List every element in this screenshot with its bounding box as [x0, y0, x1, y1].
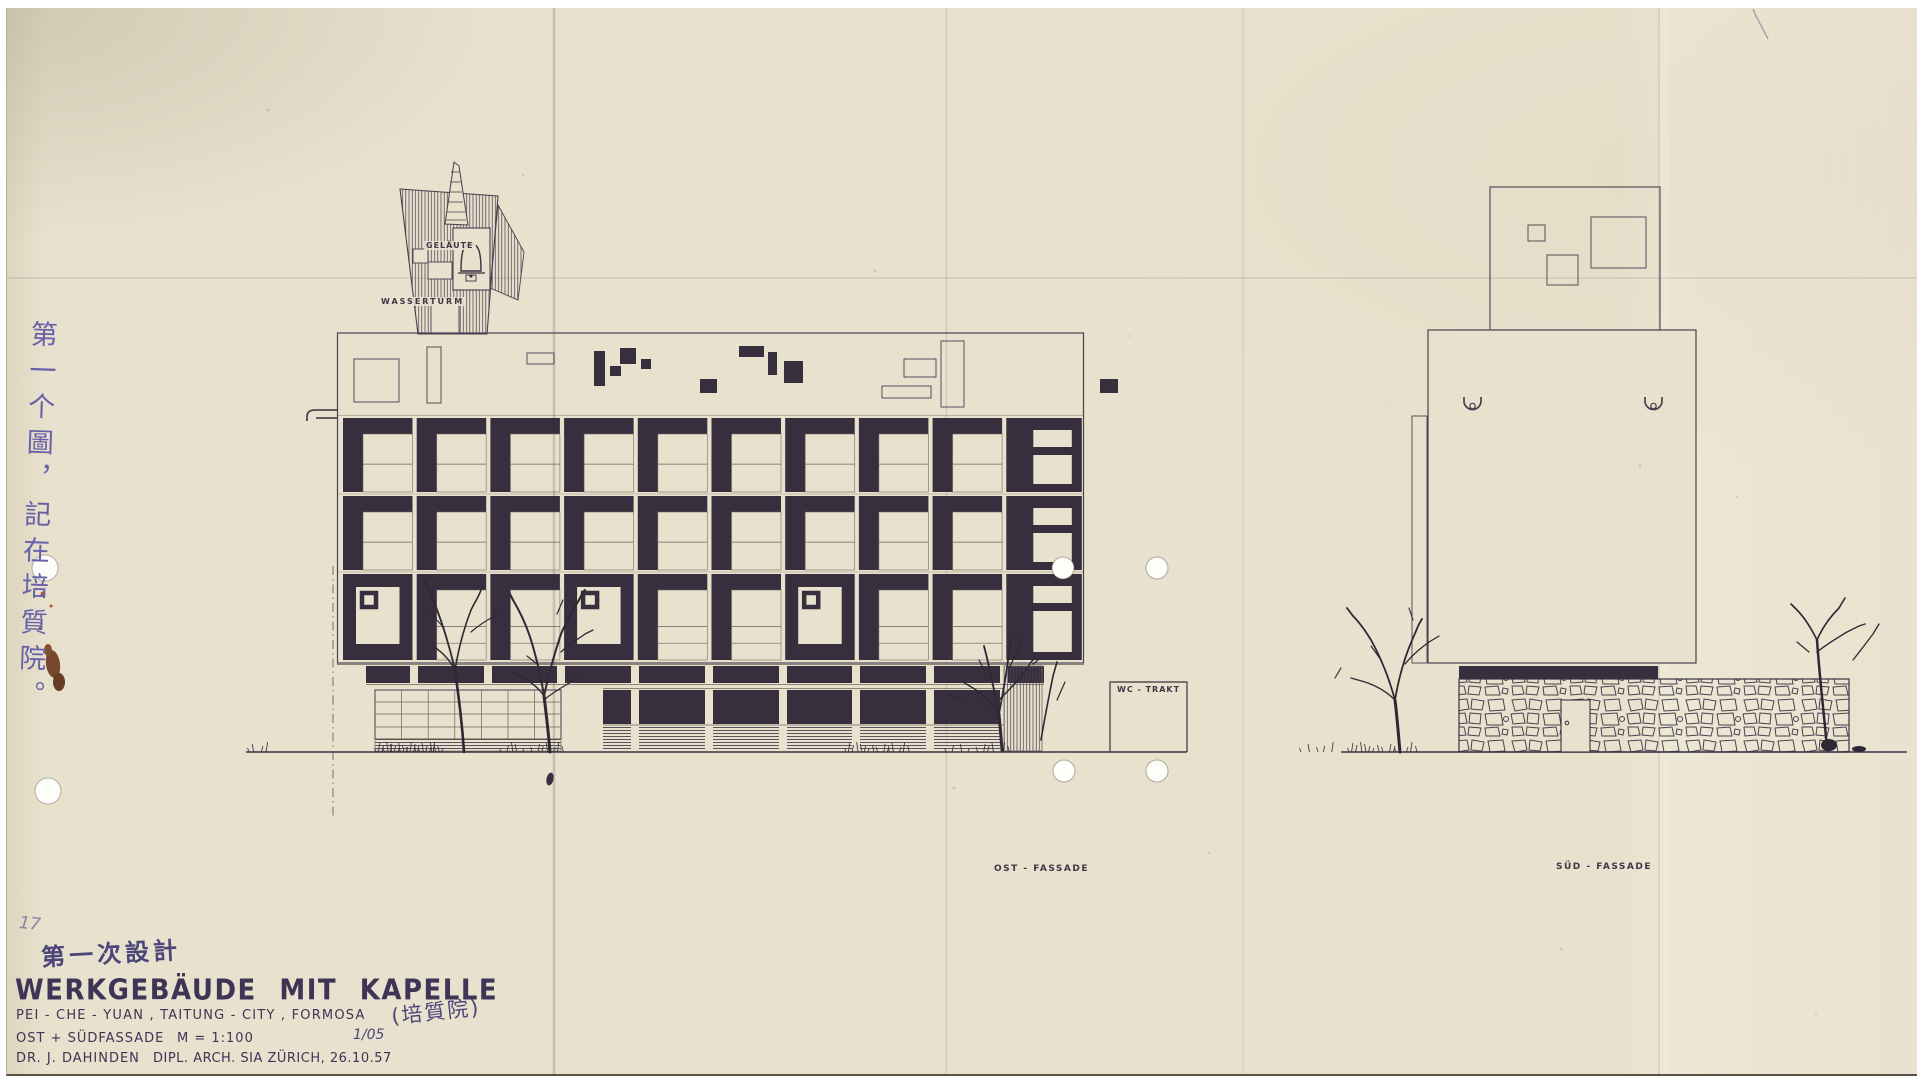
sheet-number: 1/05 — [353, 1027, 384, 1043]
south-facade-elevation — [1412, 187, 1849, 752]
south-facade-label: SÜD - FASSADE — [1556, 862, 1652, 872]
wc-trakt-label: WC - TRAKT — [1117, 685, 1180, 694]
stone-wall — [1459, 679, 1849, 752]
water-tower-label: WASSERTURM — [379, 297, 466, 306]
spout-icon — [307, 410, 337, 421]
location-line: PEI - CHE - YUAN , TAITUNG - CITY , FORM… — [16, 1008, 366, 1023]
elevation-drawing — [7, 8, 1917, 1074]
paper: GELÄUTE WASSERTURM WC - TRAKT OST - FASS… — [6, 8, 1917, 1076]
bell-label: GELÄUTE — [424, 241, 476, 250]
window-grid — [343, 418, 1082, 660]
design-phase-note-chinese: 第一次設計 — [40, 930, 182, 972]
architect-name: DR. J. DAHINDEN — [16, 1051, 140, 1066]
stray-dark-square — [1100, 379, 1118, 393]
door — [1561, 700, 1590, 752]
architect-credentials: DIPL. ARCH. SIA ZÜRICH, 26.10.57 — [153, 1051, 392, 1066]
scanned-drawing-sheet: GELÄUTE WASSERTURM WC - TRAKT OST - FASS… — [0, 0, 1920, 1080]
side-pilaster — [1412, 416, 1427, 663]
pencil-sheet-number: 17 — [18, 913, 42, 935]
pencil-mark — [1753, 9, 1768, 39]
scale-note: M = 1:100 — [177, 1031, 254, 1046]
drawing-name: OST + SÜDFASSADE — [16, 1031, 164, 1046]
east-facade-elevation — [307, 162, 1084, 816]
lintel-band — [1459, 666, 1658, 679]
ground-floor — [337, 665, 1084, 752]
bell-box — [453, 228, 490, 290]
roof-box — [1490, 187, 1660, 330]
east-facade-label: OST - FASSADE — [994, 864, 1089, 874]
attic-scattered-panels — [354, 341, 964, 407]
chapel-wall — [1428, 330, 1696, 663]
